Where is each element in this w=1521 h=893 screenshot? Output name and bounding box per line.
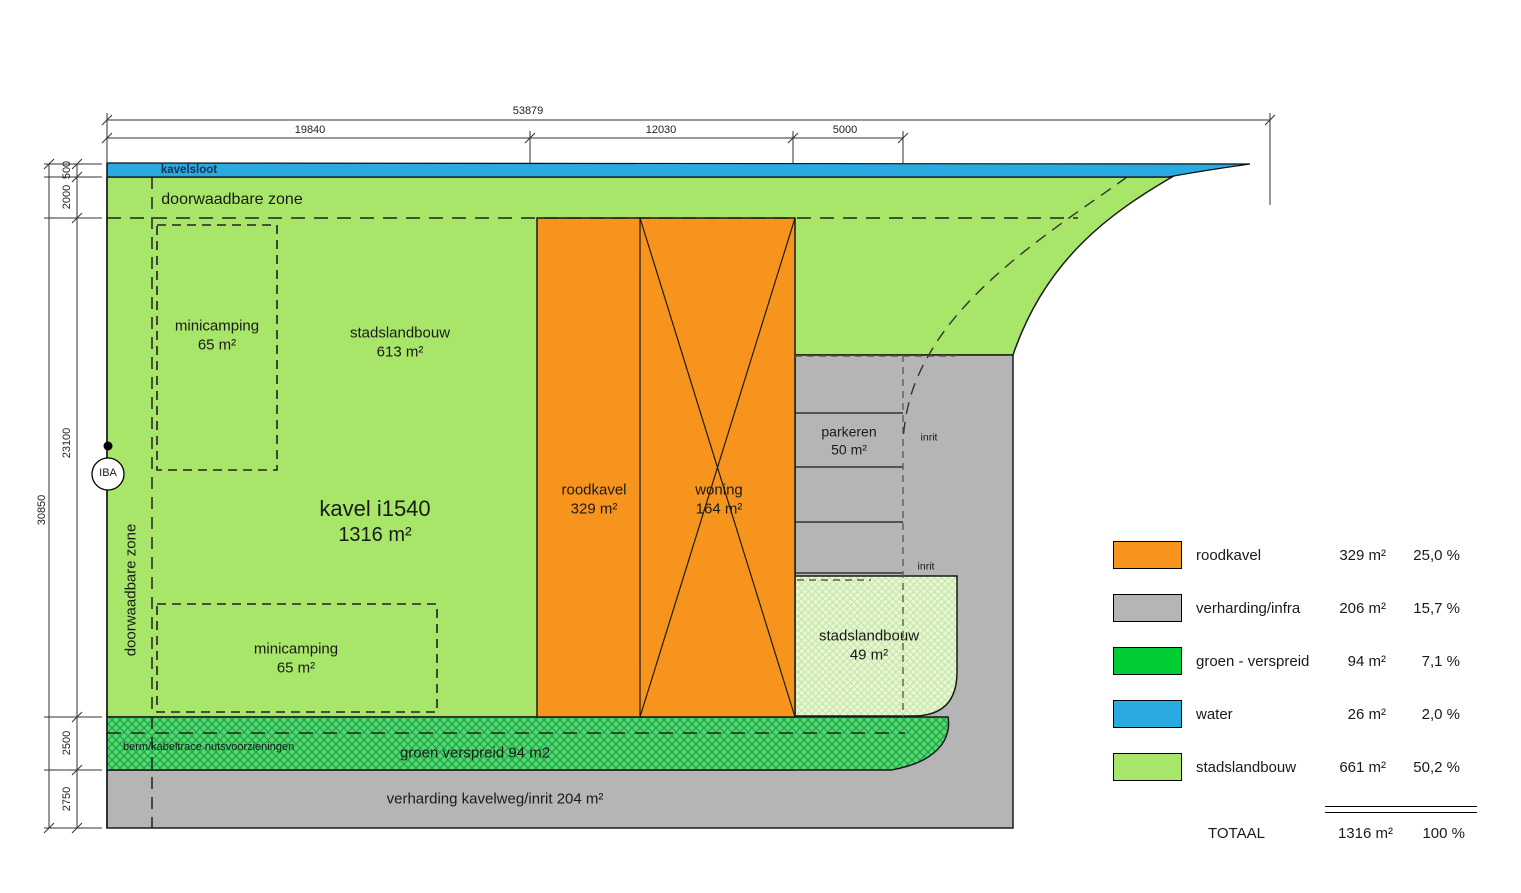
legend-swatch-stadslandbouw bbox=[1113, 753, 1182, 781]
legend-label-groen-verspreid: groen - verspreid bbox=[1196, 653, 1324, 670]
legend-swatch-water bbox=[1113, 700, 1182, 728]
minicamping-bottom-name: minicamping bbox=[254, 640, 338, 659]
legend-pct-groen-verspreid: 7,1 % bbox=[1386, 653, 1460, 670]
kavelsloot-label: kavelsloot bbox=[161, 163, 217, 177]
legend-pct-water: 2,0 % bbox=[1386, 706, 1460, 723]
doorwaadbare-zone-label: doorwaadbare zone bbox=[161, 190, 302, 210]
dim-left-seg-5: 2750 bbox=[61, 787, 73, 811]
inrit-top-label: inrit bbox=[921, 431, 938, 444]
legend-label-water: water bbox=[1196, 706, 1324, 723]
roodkavel-area-text: 329 m² bbox=[561, 500, 626, 519]
stadslandbouw-small-label: stadslandbouw 49 m² bbox=[819, 627, 919, 665]
parkeren-name: parkeren bbox=[821, 424, 876, 442]
dim-left-total: 30850 bbox=[36, 495, 48, 526]
legend-row-groen-verspreid: groen - verspreid 94 m² 7,1 % bbox=[1113, 647, 1465, 675]
legend-total-label: TOTAAL bbox=[1208, 825, 1333, 842]
dim-top-seg-2: 12030 bbox=[646, 124, 677, 136]
legend-swatch-groen-verspreid bbox=[1113, 647, 1182, 675]
groen-verspreid-label: groen verspreid 94 m2 bbox=[400, 745, 550, 764]
iba-label: IBA bbox=[99, 467, 117, 481]
minicamping-top-name: minicamping bbox=[175, 317, 259, 336]
dim-left-seg-1: 500 bbox=[61, 161, 73, 179]
legend-row-stadslandbouw: stadslandbouw 661 m² 50,2 % bbox=[1113, 753, 1465, 781]
woning-area-text: 164 m² bbox=[695, 500, 743, 519]
stadslandbouw-small-name: stadslandbouw bbox=[819, 627, 919, 646]
minicamping-bottom-area: 65 m² bbox=[254, 659, 338, 678]
legend-row-verharding: verharding/infra 206 m² 15,7 % bbox=[1113, 594, 1465, 622]
parkeren-label: parkeren 50 m² bbox=[821, 424, 876, 459]
legend-label-stadslandbouw: stadslandbouw bbox=[1196, 759, 1324, 776]
legend-row-water: water 26 m² 2,0 % bbox=[1113, 700, 1465, 728]
legend-total-rule bbox=[1325, 806, 1477, 813]
legend-label-roodkavel: roodkavel bbox=[1196, 547, 1324, 564]
stadslandbouw-small-area-text: 49 m² bbox=[819, 646, 919, 665]
site-plan-page: 53879 19840 12030 5000 30850 500 2000 23… bbox=[0, 0, 1521, 893]
legend-pct-stadslandbouw: 50,2 % bbox=[1386, 759, 1460, 776]
dim-top-seg-1: 19840 bbox=[295, 124, 326, 136]
iba-dot bbox=[104, 442, 113, 451]
parkeren-area-text: 50 m² bbox=[821, 441, 876, 459]
legend-label-verharding: verharding/infra bbox=[1196, 600, 1324, 617]
roodkavel-label: roodkavel 329 m² bbox=[561, 481, 626, 519]
legend-pct-roodkavel: 25,0 % bbox=[1386, 547, 1460, 564]
dim-left-seg-2: 2000 bbox=[61, 185, 73, 209]
berm-label: berm/kabeltrace nutsvoorzieningen bbox=[123, 741, 294, 755]
legend-total-area: 1316 m² bbox=[1333, 825, 1393, 842]
legend-row-roodkavel: roodkavel 329 m² 25,0 % bbox=[1113, 541, 1465, 569]
legend-total-pct: 100 % bbox=[1393, 825, 1465, 842]
kavel-label: kavel i1540 1316 m² bbox=[319, 495, 430, 548]
doorwaadbare-zone-vertical-label: doorwaadbare zone bbox=[123, 524, 140, 657]
legend-area-verharding: 206 m² bbox=[1324, 600, 1386, 617]
legend-area-stadslandbouw: 661 m² bbox=[1324, 759, 1386, 776]
legend-area-groen-verspreid: 94 m² bbox=[1324, 653, 1386, 670]
roodkavel-name: roodkavel bbox=[561, 481, 626, 500]
woning-label: woning 164 m² bbox=[695, 481, 743, 519]
stadslandbouw-main-name: stadslandbouw bbox=[350, 324, 450, 343]
kavelsloot-water-strip bbox=[107, 163, 1250, 177]
legend: roodkavel 329 m² 25,0 % verharding/infra… bbox=[1113, 541, 1465, 842]
legend-total-row: TOTAAL 1316 m² 100 % bbox=[1113, 825, 1465, 842]
dim-left-seg-4: 2500 bbox=[61, 731, 73, 755]
roodkavel-area bbox=[537, 218, 795, 717]
minicamping-top-label: minicamping 65 m² bbox=[175, 317, 259, 355]
dim-top-seg-3: 5000 bbox=[833, 124, 857, 136]
dim-top-total: 53879 bbox=[513, 105, 544, 117]
legend-area-roodkavel: 329 m² bbox=[1324, 547, 1386, 564]
inrit-bottom-label: inrit bbox=[918, 560, 935, 573]
minicamping-bottom-label: minicamping 65 m² bbox=[254, 640, 338, 678]
kavel-name: kavel i1540 bbox=[319, 495, 430, 523]
legend-swatch-roodkavel bbox=[1113, 541, 1182, 569]
kavel-area: 1316 m² bbox=[319, 522, 430, 547]
stadslandbouw-main-area-text: 613 m² bbox=[350, 343, 450, 362]
stadslandbouw-main-label: stadslandbouw 613 m² bbox=[350, 324, 450, 362]
legend-pct-verharding: 15,7 % bbox=[1386, 600, 1460, 617]
dim-left-seg-3: 23100 bbox=[61, 428, 73, 459]
legend-area-water: 26 m² bbox=[1324, 706, 1386, 723]
minicamping-top-area: 65 m² bbox=[175, 336, 259, 355]
legend-swatch-verharding bbox=[1113, 594, 1182, 622]
verharding-label: verharding kavelweg/inrit 204 m² bbox=[387, 791, 604, 810]
woning-name: woning bbox=[695, 481, 743, 500]
